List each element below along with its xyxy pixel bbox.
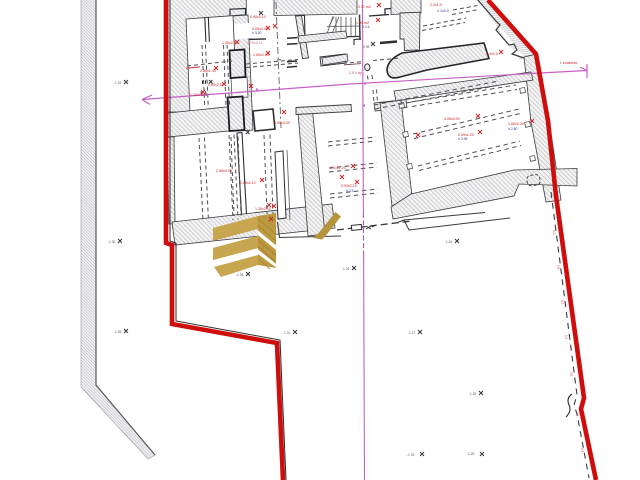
svg-text:-1.26: -1.26 — [342, 267, 349, 271]
svg-text:3.5: 3.5 — [552, 230, 557, 235]
svg-text:2.80x0.95: 2.80x0.95 — [216, 169, 232, 173]
svg-text:1.1x0.9: 1.1x0.9 — [437, 9, 449, 13]
svg-text:0.97 m2: 0.97 m2 — [358, 5, 371, 9]
svg-text:-1.22: -1.22 — [114, 81, 121, 85]
svg-text:-1.33: -1.33 — [407, 453, 414, 457]
svg-text:4.1: 4.1 — [560, 300, 565, 305]
svg-text:1.20x2.10: 1.20x2.10 — [190, 93, 206, 97]
svg-text:1.26x2.33: 1.26x2.33 — [255, 207, 271, 211]
svg-text:-1.29: -1.29 — [467, 452, 474, 456]
svg-text:2.80x1.40: 2.80x1.40 — [200, 69, 216, 73]
svg-text:-1.35: -1.35 — [114, 330, 121, 334]
svg-text:h 2.9: h 2.9 — [346, 189, 354, 193]
svg-text:h 2.4: h 2.4 — [362, 25, 370, 29]
svg-text:0.80x2.10: 0.80x2.10 — [208, 83, 224, 87]
svg-text:h 2.80: h 2.80 — [508, 127, 518, 131]
svg-text:2.2x1.0: 2.2x1.0 — [430, 3, 442, 7]
svg-text:-1.25: -1.25 — [469, 392, 476, 396]
svg-text:3.2: 3.2 — [564, 335, 569, 340]
svg-text:h 2.95: h 2.95 — [458, 137, 468, 141]
svg-text:2.4: 2.4 — [580, 448, 585, 453]
svg-text:-1.28: -1.28 — [236, 273, 243, 277]
svg-text:1.20x2.10: 1.20x2.10 — [247, 41, 263, 45]
svg-text:2.8: 2.8 — [556, 265, 561, 270]
svg-text:-1.24: -1.24 — [445, 240, 452, 244]
svg-text:-1.31: -1.31 — [283, 331, 290, 335]
svg-text:3.01x1.20: 3.01x1.20 — [330, 166, 346, 170]
svg-text:2.5 V slp: 2.5 V slp — [349, 71, 362, 75]
svg-text:1.80x2.20: 1.80x2.20 — [508, 122, 524, 126]
svg-text:0.90x2.10: 0.90x2.10 — [341, 184, 357, 188]
svg-text:3.9: 3.9 — [575, 412, 580, 417]
svg-text:h 3.20: h 3.20 — [252, 31, 262, 35]
svg-text:4.05x4.00: 4.05x4.00 — [444, 117, 460, 121]
svg-text:0.90x2.10: 0.90x2.10 — [250, 15, 266, 19]
svg-text:-1.30: -1.30 — [108, 240, 115, 244]
svg-text:3.05x3.00: 3.05x3.00 — [274, 121, 290, 125]
svg-text:2.6: 2.6 — [569, 372, 574, 377]
svg-text:-0.95: -0.95 — [362, 45, 369, 49]
svg-text:1.4x0.9: 1.4x0.9 — [486, 52, 498, 56]
svg-text:t. esistente: t. esistente — [560, 61, 577, 65]
svg-text:1.86x2.12: 1.86x2.12 — [240, 181, 256, 185]
svg-text:-1.27: -1.27 — [408, 331, 415, 335]
